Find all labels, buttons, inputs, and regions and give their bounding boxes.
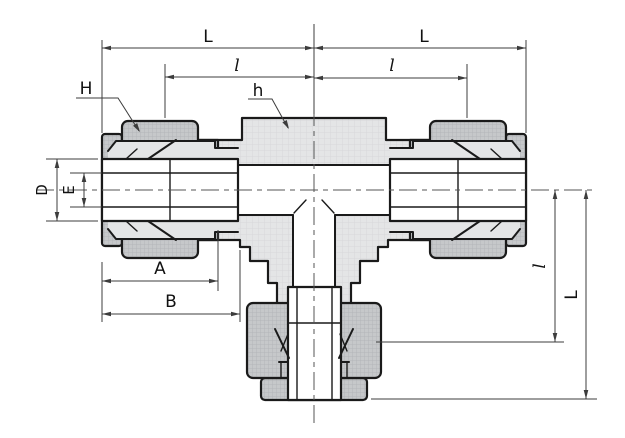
dim-label-E: E	[60, 185, 78, 194]
dim-label-B: B	[165, 292, 177, 312]
dim-label-l-right: l	[530, 263, 550, 268]
dim-label-L-top-left: L	[203, 27, 213, 47]
callout-label-H: H	[80, 79, 93, 99]
dim-label-D: D	[33, 184, 51, 196]
tee-fitting-drawing: L L l l H h D E A B l L	[0, 0, 625, 438]
dim-label-A: A	[154, 259, 166, 279]
technical-drawing-canvas: L L l l H h D E A B l L	[0, 0, 625, 438]
dim-label-L-right: L	[562, 290, 582, 300]
dim-label-l-top-left: l	[234, 56, 239, 76]
dim-label-l-top-right: l	[389, 56, 394, 76]
dim-label-L-top-right: L	[419, 27, 429, 47]
callout-label-h: h	[253, 81, 264, 101]
